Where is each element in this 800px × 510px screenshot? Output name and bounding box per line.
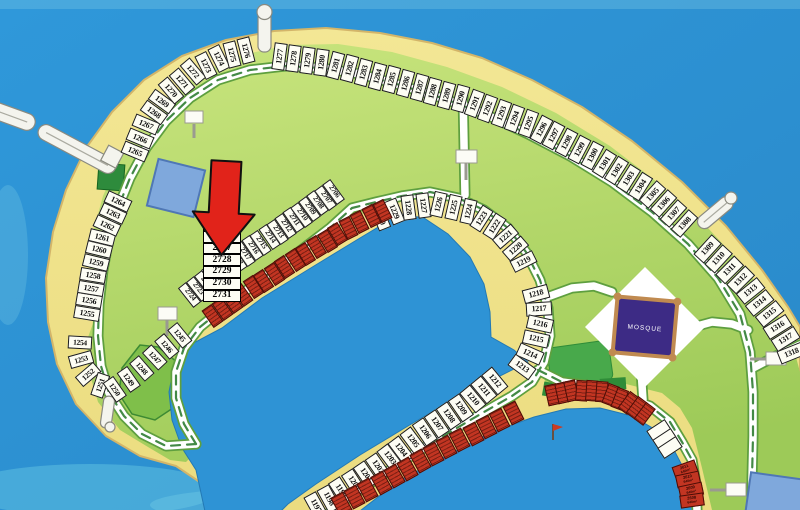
plot-2729: 2729 xyxy=(203,266,241,278)
plot-1228: 1228 xyxy=(401,195,417,222)
plots-layer: 1255125612571258125912601261126212631264… xyxy=(0,0,800,510)
plot-2728: 2728 xyxy=(203,254,241,266)
plot-2725: 2725 xyxy=(203,219,241,231)
plot-2726: 2726 xyxy=(203,231,241,243)
plot-2727: 2727 xyxy=(203,243,241,255)
plot-2730: 2730 xyxy=(203,278,241,290)
plot-map: MOSQUE 125512561257125812591260126112621… xyxy=(0,0,800,510)
plot-2731: 2731 xyxy=(203,290,241,302)
plot-1254: 1254 xyxy=(67,336,92,350)
plot-2608: 2608640m² xyxy=(679,493,705,509)
